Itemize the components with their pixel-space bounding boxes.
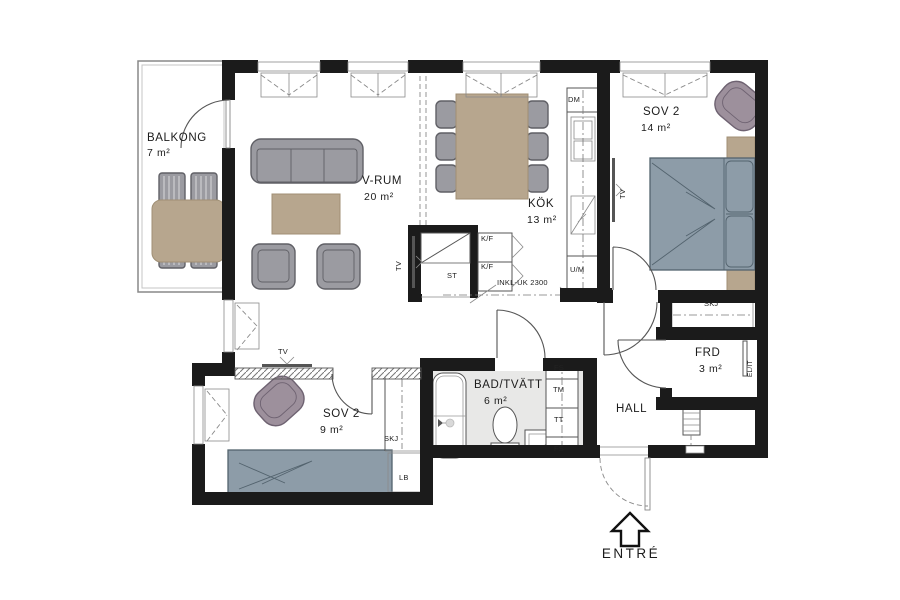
- window: [348, 62, 408, 97]
- room-area-frd: 3 m²: [699, 364, 722, 375]
- laundry-column: [546, 361, 578, 456]
- label-fs-bottom: FS: [554, 445, 564, 453]
- floor-plan: BALKONG 7 m² V-RUM 20 m² KÖK 13 m² SOV 2…: [0, 0, 900, 600]
- wall-notch: [686, 446, 704, 453]
- window: [620, 62, 710, 97]
- label-um: U/M: [570, 266, 584, 274]
- label-kf-upper: K/F: [481, 235, 493, 243]
- label-kf-lower: K/F: [481, 263, 493, 271]
- label-tv-livingroom: TV: [395, 261, 403, 271]
- entrance-door: [600, 447, 650, 510]
- room-area-kok: 13 m²: [527, 215, 557, 226]
- room-label-sov2-liten: SOV 2: [323, 409, 360, 421]
- utility-block: [408, 225, 523, 302]
- label-lb: LB: [399, 474, 409, 482]
- room-label-kok: KÖK: [528, 199, 554, 211]
- window: [258, 62, 320, 97]
- label-tt: TT: [554, 416, 564, 424]
- room-label-bad: BAD/TVÄTT: [474, 380, 543, 392]
- room-label-hall: HALL: [616, 404, 647, 416]
- room-divider-line: [420, 76, 426, 225]
- label-fs-top: FS: [554, 364, 564, 372]
- nightstand: [727, 270, 755, 291]
- label-dm: DM: [568, 96, 580, 104]
- label-skj-hall: SKJ: [704, 300, 718, 308]
- room-label-sov2-stor: SOV 2: [643, 107, 680, 119]
- hatched-partitions: [235, 368, 421, 379]
- window: [194, 386, 229, 444]
- living-armchairs: [252, 244, 360, 289]
- coffee-table: [272, 194, 340, 234]
- label-tv-bedroom: TV: [619, 189, 627, 199]
- room-label-frd: FRD: [695, 348, 720, 360]
- floor-plan-drawing: [0, 0, 900, 600]
- single-bed: [228, 450, 392, 494]
- label-opening-note: INKL-UK 2300: [497, 279, 548, 287]
- entrance-arrow-icon: [612, 513, 648, 546]
- tv-mark-livingroom: [412, 236, 415, 288]
- label-skj-sov: SKJ: [384, 435, 398, 443]
- window: [224, 300, 259, 352]
- hall-door: [604, 302, 657, 355]
- label-tv-small-bedroom: TV: [278, 348, 288, 356]
- label-tm: TM: [553, 386, 564, 394]
- tv-mark-bedroom: [612, 158, 615, 222]
- frd-door: [618, 340, 666, 388]
- balcony-table: [152, 200, 225, 262]
- room-area-vrum: 20 m²: [364, 192, 394, 203]
- double-bed: [650, 137, 755, 291]
- bathroom-door: [497, 310, 545, 358]
- sofa: [251, 139, 363, 183]
- room-area-sov2-stor: 14 m²: [641, 123, 671, 134]
- dining-table: [456, 94, 528, 199]
- kitchen-counter: [567, 88, 599, 290]
- room-area-bad: 6 m²: [484, 396, 507, 407]
- entrance-label: ENTRÉ: [596, 547, 666, 561]
- label-el-it: EL/IT: [748, 360, 755, 377]
- room-area-sov2-liten: 9 m²: [320, 425, 343, 436]
- room-label-vrum: V-RUM: [362, 176, 402, 188]
- room-label-balkong: BALKONG: [147, 133, 207, 145]
- window: [463, 62, 540, 97]
- label-st: ST: [447, 272, 457, 280]
- nightstand: [727, 137, 755, 158]
- room-area-balkong: 7 m²: [147, 148, 170, 159]
